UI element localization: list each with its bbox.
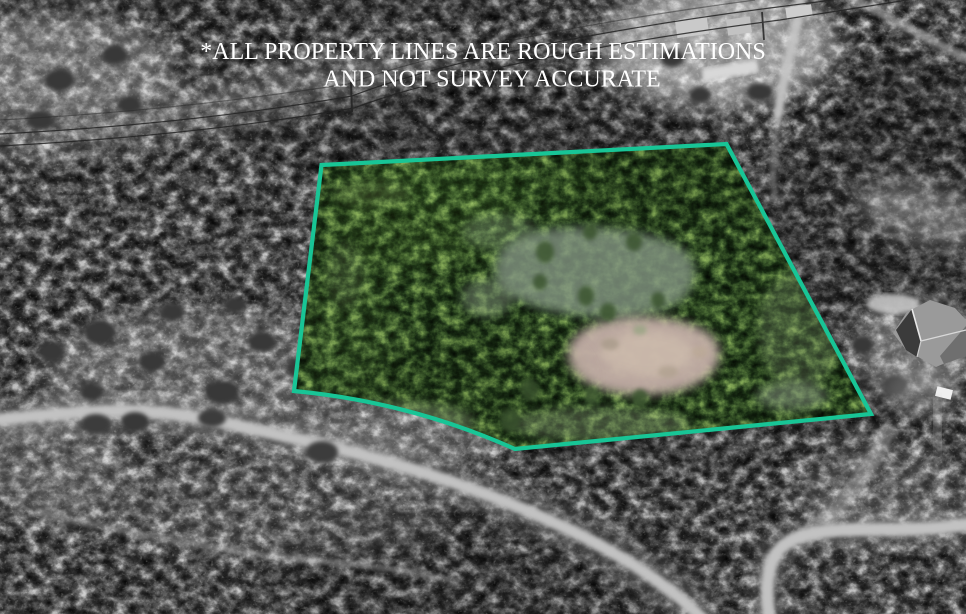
svg-text:*ALL PROPERTY LINES ARE ROUGH: *ALL PROPERTY LINES ARE ROUGH ESTIMATION… (200, 39, 765, 65)
svg-text:AND NOT SURVEY ACCURATE: AND NOT SURVEY ACCURATE (323, 67, 660, 93)
